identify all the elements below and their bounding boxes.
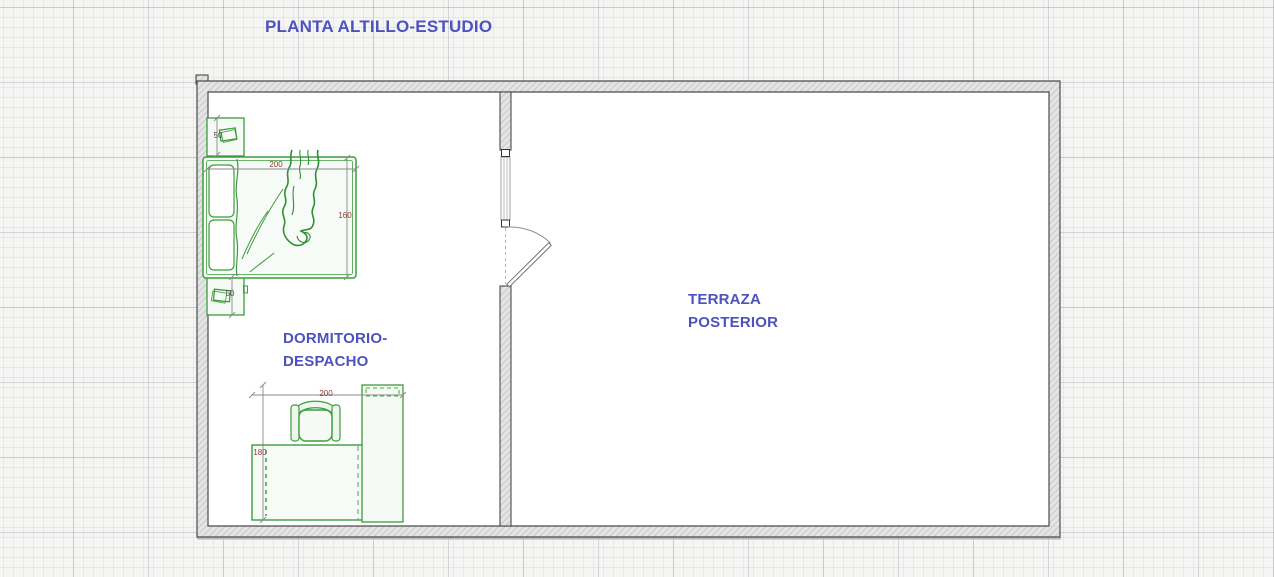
dim-label-desk-depth: 180 xyxy=(253,449,266,457)
room-label-line2: DESPACHO xyxy=(283,353,369,370)
nightstand-icon[interactable] xyxy=(207,118,244,156)
room-label-line2: POSTERIOR xyxy=(688,314,778,331)
room-label-line1: TERRAZA xyxy=(688,291,761,308)
floor-plan-drawing xyxy=(0,0,1274,577)
drawing-canvas: PLANTA ALTILLO-ESTUDIO DORMITORIO-DESPAC… xyxy=(0,0,1274,577)
dim-label-bed-length: 160 xyxy=(338,212,351,220)
dim-label-bed-width: 200 xyxy=(269,161,282,169)
dim-label-nightstand-bottom: 50 xyxy=(226,290,235,298)
dim-label-nightstand-top: 50 xyxy=(214,132,223,140)
dim-label-desk-width: 200 xyxy=(319,390,332,398)
room-label-line1: DORMITORIO- xyxy=(283,330,387,347)
shelf-cabinet-icon[interactable] xyxy=(362,385,403,522)
window-icon[interactable] xyxy=(501,150,510,228)
page-title[interactable]: PLANTA ALTILLO-ESTUDIO xyxy=(265,17,492,37)
office-chair-icon[interactable] xyxy=(291,401,340,441)
room-label-dormitorio-despacho[interactable]: DORMITORIO-DESPACHO xyxy=(283,327,387,373)
room-label-terraza-posterior[interactable]: TERRAZAPOSTERIOR xyxy=(688,288,778,334)
